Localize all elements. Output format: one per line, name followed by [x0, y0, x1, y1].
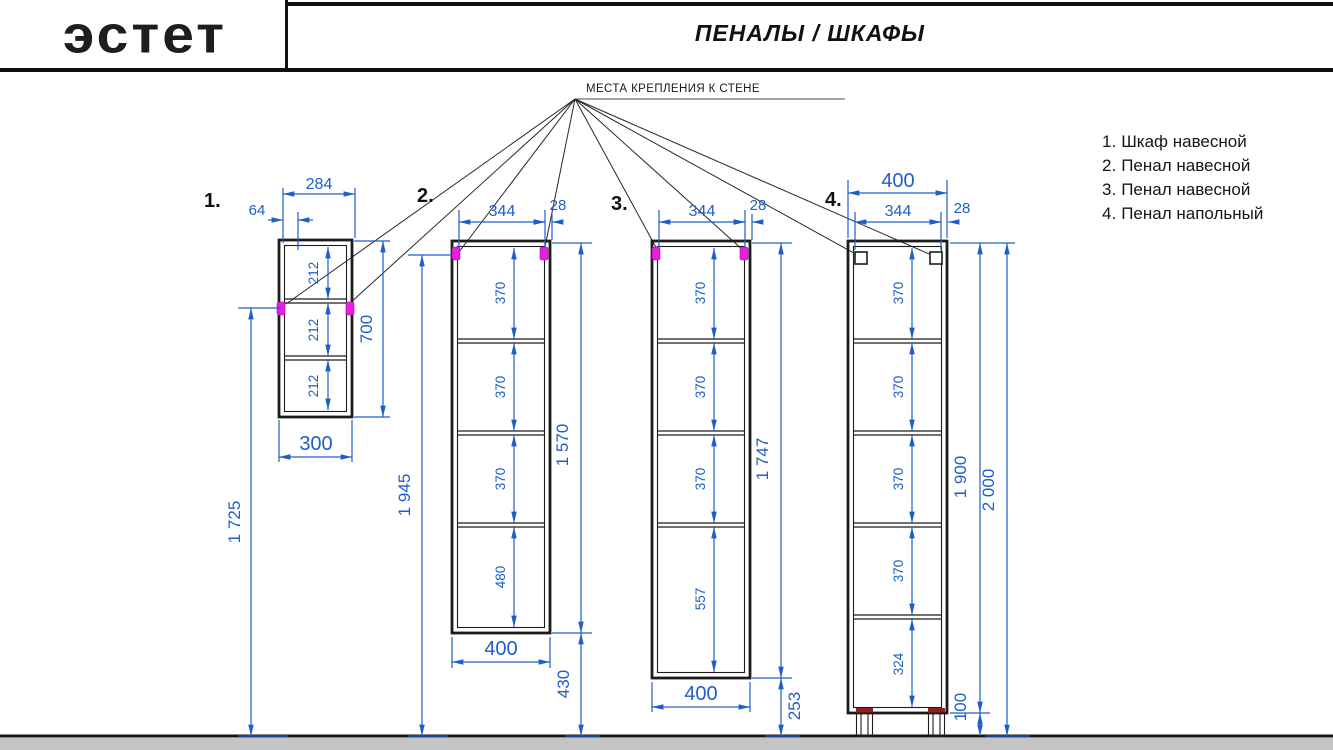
legend-label: Шкаф навесной	[1121, 130, 1247, 154]
dim-label: 344	[689, 203, 716, 220]
drawing-sheet: эстет ПЕНАЛЫ / ШКАФЫ 1.Шкаф навесной 2.П…	[0, 0, 1333, 750]
cabinet-1-dim-bottom-width: 300	[279, 420, 352, 462]
dim-label: 1 570	[553, 424, 572, 467]
dim-label: 28	[954, 200, 971, 217]
dim-label: 28	[750, 197, 767, 214]
floor	[0, 736, 1333, 750]
cabinet-1-dim-compartments: 212 212 212	[306, 247, 328, 410]
page-title: ПЕНАЛЫ / ШКАФЫ	[287, 0, 1333, 66]
cabinet-1-mount-clips	[277, 302, 354, 315]
legend-item: 4.Пенал напольный	[1102, 202, 1263, 226]
legend-label: Пенал навесной	[1121, 154, 1250, 178]
dim-label: 557	[693, 588, 708, 611]
cabinet-4-dim-edge: 28	[931, 200, 970, 222]
elevation-drawing: МЕСТА КРЕПЛЕНИЯ К СТЕНЕ 1.	[0, 0, 1333, 750]
dim-label: 1 747	[753, 438, 772, 481]
cabinet-2-dim-total: 1 945	[395, 255, 452, 736]
dim-label: 28	[550, 197, 567, 214]
cabinet-3-dim-bottom-width: 400	[652, 682, 750, 712]
dim-label: 1 725	[225, 501, 244, 544]
cabinet-3-dim-edge: 28	[735, 197, 766, 240]
dim-label: 212	[306, 375, 321, 398]
cabinet-4: 4.	[825, 170, 1030, 736]
legend-item: 1.Шкаф навесной	[1102, 130, 1263, 154]
cabinet-1-number: 1.	[204, 190, 221, 212]
cabinet-3-dim-height: 1 747	[752, 243, 792, 678]
title-block: эстет ПЕНАЛЫ / ШКАФЫ	[0, 0, 1333, 72]
cabinet-3-body	[652, 241, 750, 678]
cabinet-2: 2. 344	[395, 185, 600, 736]
dim-label: 370	[891, 560, 906, 583]
legend-num: 3.	[1102, 178, 1116, 202]
dim-label: 300	[299, 433, 332, 455]
cabinet-1-dim-height: 700	[354, 241, 390, 417]
cabinet-4-dim-total: 2 000	[979, 243, 1030, 736]
dim-label: 400	[881, 170, 914, 192]
dim-label: 212	[306, 319, 321, 342]
cabinet-3-mount-clips	[652, 247, 748, 260]
cabinet-1-dim-mount-offset: 64	[249, 202, 313, 250]
dim-label: 212	[306, 262, 321, 285]
cabinet-3: 3. 344	[611, 193, 804, 736]
dim-label: 370	[693, 282, 708, 305]
legend-num: 2.	[1102, 154, 1116, 178]
dim-label: 344	[885, 203, 912, 220]
brand-logo: эстет	[14, 6, 276, 63]
dim-label: 430	[554, 670, 573, 698]
dim-label: 1 945	[395, 474, 414, 517]
cabinet-2-dim-height: 1 570	[552, 243, 592, 633]
legend-num: 1.	[1102, 130, 1116, 154]
cabinet-4-dim-compartments: 370 370 370 370 324	[891, 248, 912, 707]
legend-num: 4.	[1102, 202, 1116, 226]
dim-label: 370	[493, 282, 508, 305]
dim-label: 370	[493, 376, 508, 399]
dim-label: 370	[693, 376, 708, 399]
legend-item: 2.Пенал навесной	[1102, 154, 1263, 178]
dim-label: 480	[493, 566, 508, 589]
cabinet-3-dim-compartments: 370 370 370 557	[693, 248, 714, 672]
cabinet-2-number: 2.	[417, 185, 434, 207]
legend-label: Пенал навесной	[1121, 178, 1250, 202]
header-bottom-border	[0, 68, 1333, 72]
dim-label: 370	[891, 468, 906, 491]
dim-label: 1 900	[951, 456, 970, 499]
dim-label: 700	[357, 315, 376, 343]
dim-label: 370	[693, 468, 708, 491]
dim-label: 400	[684, 683, 717, 705]
dim-label: 284	[306, 176, 333, 193]
cabinet-4-dim-top-width: 344	[855, 203, 941, 250]
legend: 1.Шкаф навесной 2.Пенал навесной 3.Пенал…	[1102, 130, 1263, 226]
cabinet-4-number: 4.	[825, 189, 842, 211]
cabinet-3-dim-below: 253	[765, 678, 804, 736]
dim-label: 64	[249, 202, 266, 219]
legend-item: 3.Пенал навесной	[1102, 178, 1263, 202]
cabinet-2-dim-below: 430	[554, 633, 600, 736]
dim-label: 100	[951, 693, 970, 721]
dim-label: 2 000	[979, 469, 998, 512]
dim-label: 370	[891, 282, 906, 305]
cabinet-4-dim-legs: 100	[951, 693, 980, 736]
mount-points-label: МЕСТА КРЕПЛЕНИЯ К СТЕНЕ	[586, 83, 760, 95]
cabinet-1-dim-top-width: 284	[283, 176, 355, 243]
cabinet-2-dim-compartments: 370 370 370 480	[493, 248, 514, 627]
legend-label: Пенал напольный	[1121, 202, 1263, 226]
dim-label: 400	[484, 638, 517, 660]
cabinet-3-number: 3.	[611, 193, 628, 215]
dim-label: 344	[489, 203, 516, 220]
cabinet-2-mount-clips	[452, 247, 548, 260]
dim-label: 370	[493, 468, 508, 491]
cabinet-2-dim-bottom-width: 400	[452, 637, 550, 668]
dim-label: 253	[785, 692, 804, 720]
dim-label: 370	[891, 376, 906, 399]
cabinet-1: 1. 284 64	[204, 176, 390, 736]
dim-label: 324	[891, 652, 906, 675]
